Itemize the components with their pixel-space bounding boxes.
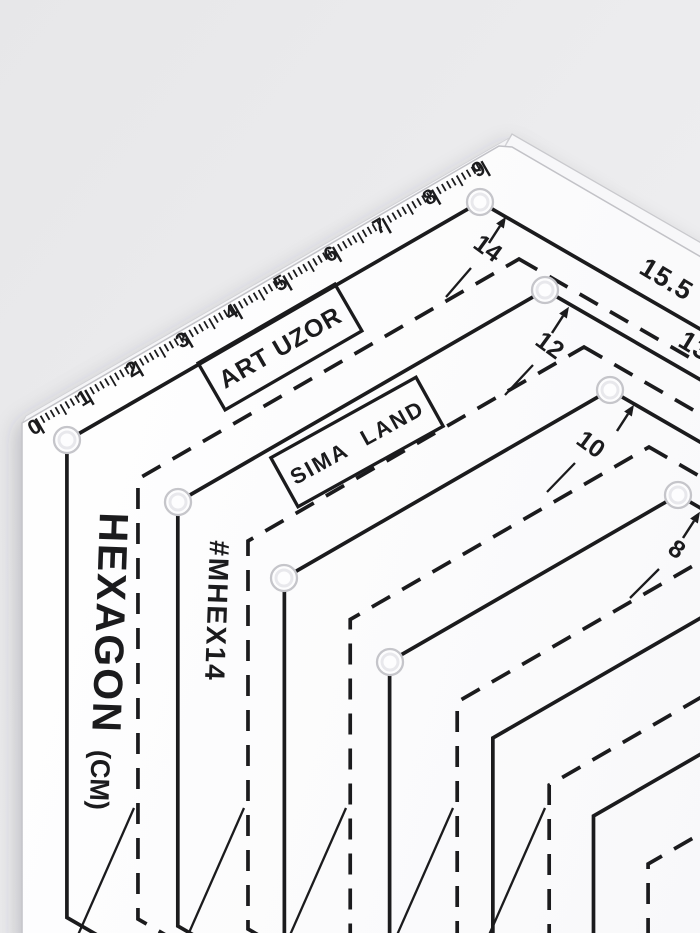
unit-label: (CM) [84,749,116,810]
product-name: HEXAGON [83,512,137,735]
hexagon-ruler-product-photo: 0 1 2 3 4 5 6 7 8 9 14 12 10 8 15.5 13.5… [0,0,700,933]
model-code-text: #MHEX14 [199,540,235,683]
